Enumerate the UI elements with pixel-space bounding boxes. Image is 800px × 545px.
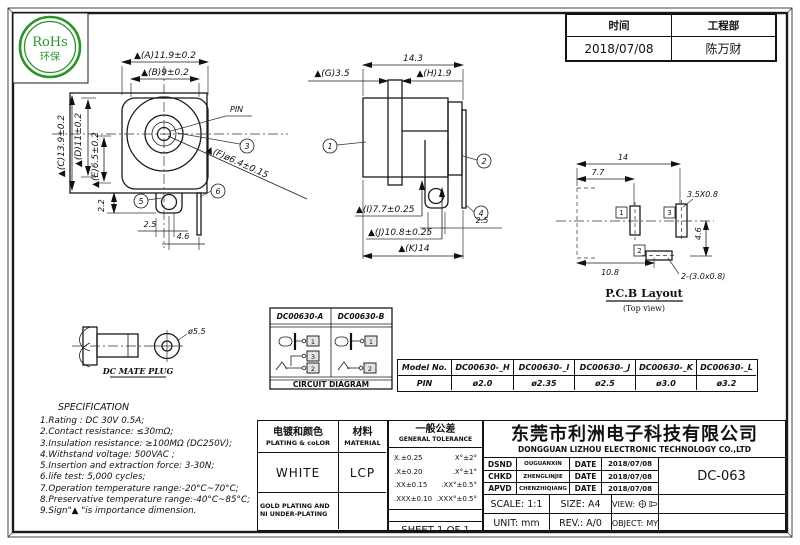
- dim-d-label: ▲(D)11±0.2: [74, 113, 84, 167]
- specification-block: SPECIFICATION 1.Rating : DC 30V 0.5A; 2.…: [40, 402, 256, 518]
- pcb-dim-10-8: 10.8: [601, 268, 619, 277]
- svg-text:5: 5: [138, 197, 143, 206]
- pcb-pad-3: 3: [667, 209, 671, 217]
- material-empty-cell: [338, 492, 386, 529]
- unit-row: UNIT:mm REV.:A/0 OBJECT:MY: [484, 513, 785, 533]
- plating-material-table: 电镀和颜色 PLATING & coLOR 材料 MATERIAL WHITE …: [257, 420, 388, 531]
- spec-line: 1.Rating : DC 30V 0.5A;: [40, 416, 256, 427]
- spec-line: 7.Operation temperature range:-20°C~70°C…: [40, 484, 256, 495]
- pin-row-cell: PIN: [398, 375, 451, 390]
- svg-text:1: 1: [327, 142, 332, 151]
- specification-title: SPECIFICATION: [58, 402, 256, 413]
- dim-b-label: ▲(B)9±0.2: [141, 68, 189, 78]
- tolerance-empty-row: [389, 509, 482, 522]
- rohs-text: RoHs: [32, 35, 68, 50]
- time-label-cell: 时间: [567, 15, 671, 36]
- plating-note-cell: GOLD PLATING AND NI UNDER-PLATING: [258, 492, 338, 529]
- title-block-right: 东莞市利洲电子科技有限公司 DONGGUAN LIZHOU ELECTRONIC…: [483, 420, 786, 531]
- model-header-cell: DC00630-_I: [513, 360, 574, 375]
- balloon-2: 2: [477, 154, 491, 168]
- view-cell: VIEW:: [611, 495, 658, 513]
- balloon-5: 5: [134, 194, 148, 208]
- plating-header-cell: 电镀和颜色 PLATING & coLOR: [258, 421, 338, 452]
- dim-14-3-label: 14.3: [403, 54, 423, 64]
- approval-name: CHENZHIQIANG: [516, 482, 569, 494]
- model-header-cell: Model No.: [398, 360, 451, 375]
- svg-text:4: 4: [478, 209, 483, 218]
- front-view-body: [52, 66, 288, 248]
- header-table: 时间 工程部 2018/07/08 陈万财: [565, 13, 777, 62]
- balloon-3: 3: [240, 139, 254, 153]
- plug-label: DC MATE PLUG: [102, 366, 174, 376]
- pin-row-cell: ø2.0: [451, 375, 513, 390]
- rohs-cn-text: 环保: [40, 50, 60, 63]
- time-value-cell: 2018/07/08: [567, 36, 671, 60]
- dept-label-cell: 工程部: [671, 15, 775, 36]
- part-number-cell: DC-063: [658, 458, 784, 494]
- pin-row-cell: ø2.5: [574, 375, 635, 390]
- unit-cell: UNIT:mm: [484, 514, 549, 533]
- approval-role: APVD: [484, 482, 516, 494]
- rohs-logo: RoHs 环保: [13, 13, 88, 83]
- pcb-subtitle: (Top view): [623, 304, 665, 313]
- svg-text:6: 6: [215, 187, 220, 196]
- projection-symbol-icon: [638, 498, 658, 510]
- scale-row-empty-cell: [658, 495, 784, 513]
- dim-h-label: ▲(H)1.9: [416, 69, 451, 79]
- company-name-cn: 东莞市利洲电子科技有限公司: [511, 425, 758, 445]
- plug-dia-label: ø5.5: [187, 327, 206, 336]
- company-header: 东莞市利洲电子科技有限公司 DONGGUAN LIZHOU ELECTRONIC…: [484, 421, 785, 458]
- approval-date: 2018/07/08: [601, 482, 658, 494]
- scale-row: SCALE:1:1 SIZE:A4 VIEW:: [484, 494, 785, 513]
- model-header-cell: DC00630-_K: [635, 360, 696, 375]
- model-header-cell: DC00630-_J: [574, 360, 635, 375]
- balloon-6: 6: [211, 184, 225, 198]
- dept-value-cell: 陈万财: [671, 36, 775, 60]
- mate-plug-view: ø5.5 DC MATE PLUG: [72, 327, 206, 377]
- model-pin-table: Model No. DC00630-_H DC00630-_I DC00630-…: [397, 359, 758, 392]
- approvals-table: DSND OUGUANXIN DATE 2018/07/08 DC-063 CH…: [484, 458, 785, 494]
- pcb-pad-1: 1: [619, 209, 623, 217]
- approval-name: ZHENGLINJIE: [516, 470, 569, 482]
- pcb-title: P.C.B Layout: [605, 287, 683, 300]
- pin-row-cell: ø3.0: [635, 375, 696, 390]
- unit-row-empty-cell: [658, 514, 784, 533]
- front-view-dimensions: [72, 62, 307, 250]
- circuit-a-term-1: 1: [311, 338, 315, 346]
- pcb-layout: 14 7.7 3.5X0.8 4.6 10.8 2-(3.0x0.8) 1 3 …: [556, 153, 725, 313]
- pcb-slots-note: 2-(3.0x0.8): [681, 272, 725, 281]
- side-view-body: [363, 80, 466, 208]
- dim-c-label: ▲(C)13.9±0.2: [57, 115, 67, 177]
- approval-date: 2018/07/08: [601, 458, 658, 470]
- circuit-model-b: DC00630-B: [338, 312, 385, 321]
- approval-date: 2018/07/08: [601, 470, 658, 482]
- object-cell: OBJECT:MY: [611, 514, 658, 533]
- circuit-b-term-1: 1: [369, 338, 373, 346]
- pin-row-cell: ø3.2: [696, 375, 756, 390]
- model-header-cell: DC00630-_L: [696, 360, 756, 375]
- tolerance-values: X.±0.25X°±2° .X±0.20.X°±1° .XX±0.15.XX°±…: [389, 448, 482, 509]
- svg-text:3: 3: [244, 142, 249, 151]
- approval-role: DSND: [484, 458, 516, 470]
- plating-value-cell: WHITE: [258, 452, 338, 492]
- circuit-diagram: DC00630-A DC00630-B CIRCUIT DIAGRAM 1 3 …: [270, 308, 392, 389]
- pcb-dim-14: 14: [618, 153, 628, 162]
- balloon-1: 1: [323, 139, 337, 153]
- circuit-title: CIRCUIT DIAGRAM: [293, 380, 369, 389]
- spec-line: 8.Preservative temperature range:-40°C~8…: [40, 495, 256, 506]
- spec-line: 9.Sign"▲ "is importance dimension.: [40, 506, 256, 517]
- spec-line: 6.life test: 5,000 cycles;: [40, 472, 256, 483]
- svg-text:2: 2: [481, 157, 486, 166]
- company-name-en: DONGGUAN LIZHOU ELECTRONIC TECHNOLOGY CO…: [518, 445, 751, 454]
- spec-line: 3.Insulation resistance: ≥100MΩ (DC250V)…: [40, 439, 256, 450]
- circuit-a-term-2: 2: [311, 365, 315, 373]
- tolerance-header: 一般公差 GENERAL TOLERANCE: [389, 421, 482, 448]
- scale-cell: SCALE:1:1: [484, 495, 549, 513]
- circuit-a-term-3: 3: [311, 353, 315, 361]
- model-header-cell: DC00630-_H: [451, 360, 513, 375]
- pin-label: PIN: [230, 105, 243, 114]
- sheet-number: SHEET 1 OF 1: [389, 522, 482, 538]
- approval-date-label: DATE: [569, 482, 601, 494]
- drawing-sheet: RoHs 环保: [0, 0, 800, 545]
- dim-2-5-label: 2.5: [144, 220, 157, 229]
- material-value-cell: LCP: [338, 452, 386, 492]
- approval-role: CHKD: [484, 470, 516, 482]
- tolerance-table: 一般公差 GENERAL TOLERANCE X.±0.25X°±2° .X±0…: [388, 420, 483, 531]
- pin-row-cell: ø2.35: [513, 375, 574, 390]
- approval-name: OUGUANXIN: [516, 458, 569, 470]
- dim-k-label: ▲(K)14: [398, 244, 430, 254]
- material-header-cell: 材料 MATERIAL: [338, 421, 386, 452]
- spec-line: 5.Insertion and extraction force: 3-30N;: [40, 461, 256, 472]
- front-view: ▲(A)11.9±0.2 ▲(B)9±0.2 ▲(C)13.9±0.2 ▲(D)…: [52, 51, 307, 250]
- circuit-b-term-2: 2: [368, 365, 372, 373]
- dim-j-label: ▲(J)10.8±0.25: [368, 228, 432, 238]
- side-view: 14.3 ▲(G)3.5 ▲(H)1.9 ▲(I)7.7±0.25 ▲(J)10…: [308, 54, 502, 259]
- spec-line: 2.Contact resistance: ≤30mΩ;: [40, 427, 256, 438]
- dim-f-label: ▲(F)ø6.4±0.15: [205, 145, 270, 181]
- approval-date-label: DATE: [569, 458, 601, 470]
- dim-4-6-label: 4.6: [177, 232, 190, 241]
- size-cell: SIZE:A4: [549, 495, 611, 513]
- pcb-dim-4-6: 4.6: [694, 227, 703, 240]
- rev-cell: REV.:A/0: [549, 514, 611, 533]
- approval-date-label: DATE: [569, 470, 601, 482]
- spec-line: 4.Withstand voltage: 500VAC ;: [40, 450, 256, 461]
- dim-i-label: ▲(I)7.7±0.25: [356, 205, 415, 215]
- dim-g-label: ▲(G)3.5: [314, 69, 350, 79]
- dim-2-2-label: 2.2: [97, 199, 106, 212]
- balloon-4: 4: [474, 206, 488, 220]
- pcb-dim-7-7: 7.7: [592, 168, 606, 177]
- dim-e-label: ▲(E)6.5±0.2: [91, 132, 101, 188]
- pcb-pad-2: 2: [637, 247, 641, 255]
- pcb-slot-note: 3.5X0.8: [687, 190, 718, 199]
- circuit-model-a: DC00630-A: [277, 312, 324, 321]
- dim-a-label: ▲(A)11.9±0.2: [134, 51, 196, 61]
